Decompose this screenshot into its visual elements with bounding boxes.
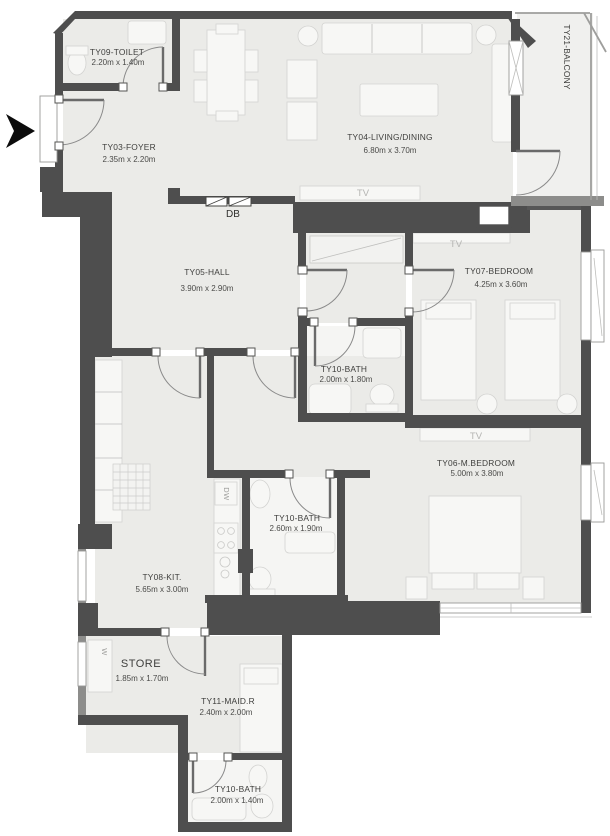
room-label-store: STORE [121,658,161,670]
wall-segment [511,95,520,152]
room-label-bath-hall: TY10-BATH [321,364,367,374]
room-dims-foyer: 2.35m x 2.20m [103,155,156,164]
wall-segment [298,312,307,422]
room-dims-maid: 2.40m x 2.00m [200,708,253,717]
bed-double [429,496,521,573]
window-master-right [581,463,604,522]
wall-segment [337,470,345,603]
bed-pillow [426,303,471,319]
room-label-hall: TY05-HALL [184,267,230,277]
shaft-box [478,205,510,226]
room-dims-master: 5.00m x 3.80m [451,469,504,478]
room-dims-toilet: 2.20m x 1.40m [92,58,145,67]
wall-segment [511,196,604,206]
db-panels [206,197,251,206]
entry-arrow-icon [6,114,35,148]
room-dims-bath-maid: 2.00m x 1.40m [211,796,264,805]
wall-segment [205,595,348,603]
tv-label-living: TV [357,188,370,199]
window-balcony-panel [509,41,523,95]
wall-segment [405,415,583,428]
room-dims-bedroom: 4.25m x 3.60m [475,280,528,289]
room-label-foyer: TY03-FOYER [102,142,156,152]
room-label-bath-maid: TY10-BATH [215,784,261,794]
nightstand [406,577,427,599]
window-entry-recess [40,96,57,162]
wall-segment [80,217,112,357]
window-bedroom-right [581,250,604,342]
wall-segment [242,478,250,595]
wall-segment [298,233,306,270]
coffee-table [360,84,438,116]
dishwasher-label: DW [222,487,231,501]
room-dims-bath-hall: 2.00m x 1.80m [320,375,373,384]
wall-segment [80,357,95,524]
room-dims-living: 6.80m x 3.70m [364,146,417,155]
wall-segment [172,19,180,90]
bath-sink [250,480,270,508]
room-label-living: TY04-LIVING/DINING [347,132,433,142]
bed-pillow [510,303,555,319]
bath-wc [370,384,394,406]
room-dims-bath-master: 2.60m x 1.90m [270,524,323,533]
armchair [287,60,317,98]
floor-plan-page: TY09-TOILET 2.20m x 1.40m TY03-FOYER 2.3… [0,0,610,836]
room-dims-store: 1.85m x 1.70m [116,674,169,683]
dining-chair [216,111,238,121]
wall-segment [63,83,123,91]
room-dims-hall: 3.90m x 2.90m [181,284,234,293]
room-label-balcony: TY21-BALCONY [562,24,572,89]
floor-bedroom-nook [530,210,581,235]
toilet-wc-tank [66,46,88,55]
bed-pillow [244,668,278,684]
dining-table [207,30,245,115]
wall-pier [78,524,112,549]
window-master-bottom [440,603,592,617]
wall-segment [55,33,63,100]
planter [476,25,496,45]
room-label-toilet: TY09-TOILET [90,47,144,57]
room-label-bedroom: TY07-BEDROOM [465,266,533,276]
window [78,551,86,601]
shower [285,532,335,553]
wall-segment [200,348,251,356]
db-label: DB [226,209,240,220]
sofa [322,23,472,54]
wall-segment [95,628,165,636]
wall-segment [353,318,412,326]
wall-segment [581,203,591,252]
wall-segment [282,633,292,832]
wall-segment [178,725,188,832]
room-label-maid: TY11-MAID.R [201,696,255,706]
wall-segment [42,192,112,217]
wall-segment [78,715,188,725]
wall-segment [178,822,292,832]
wall-segment [581,520,591,613]
bed-pillow [432,573,474,589]
planter [298,26,318,46]
wall-pier [238,549,253,573]
wall-segment [581,340,591,465]
bath-wc-tank [366,404,398,412]
room-dims-kitchen: 5.65m x 3.00m [136,585,189,594]
bathtub [309,384,351,415]
nightstand [523,577,544,599]
room-label-kitchen: TY08-KIT. [142,572,181,582]
wall-thick-bar [207,601,440,635]
dining-chair [194,80,207,102]
dining-chair [245,50,258,72]
bath-sink [363,328,401,358]
kitchen-stove [214,523,238,553]
toilet-sink [128,21,166,44]
wall-segment [108,348,156,356]
dining-chair [216,24,238,34]
closet [310,236,403,263]
wall-segment [75,11,512,19]
wall-segment [300,413,412,422]
floor-plan: TY09-TOILET 2.20m x 1.40m TY03-FOYER 2.3… [0,0,610,836]
bed-pillow [477,573,519,589]
wall-segment [207,470,288,478]
wall-segment [330,470,370,478]
dining-chair [194,50,207,72]
room-label-master: TY06-M.BEDROOM [437,458,515,468]
wall-segment [405,313,413,422]
wall-segment [405,233,413,270]
room-label-bath-master: TY10-BATH [274,513,320,523]
tv-label-master: TV [470,431,483,442]
armchair [287,102,317,140]
stool [477,394,497,414]
dining-chair [245,80,258,102]
wall-segment [207,356,214,470]
wall-segment [40,167,63,192]
washer-label: W [100,648,109,656]
tv-label-bedroom: TV [450,239,463,250]
floor-hall [112,204,300,350]
window [78,642,86,686]
kitchen-hatch-grid [113,464,150,510]
stool [557,394,577,414]
